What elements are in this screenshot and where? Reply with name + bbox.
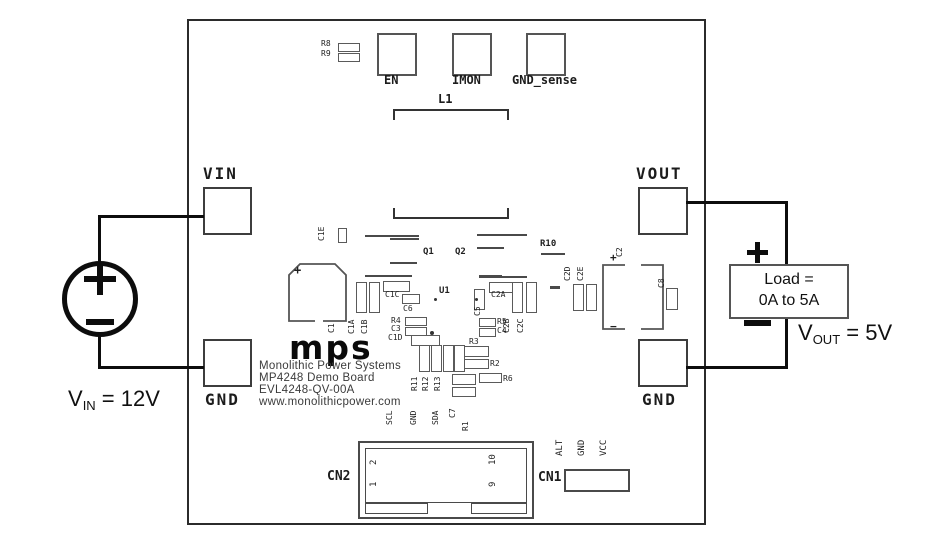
c2d-body <box>573 284 584 311</box>
c8-body <box>666 288 678 310</box>
pad-en <box>377 33 417 76</box>
refdes-c1d: C1D <box>388 333 402 343</box>
logo-line-partnumber: EVL4248-QV-00A <box>259 384 355 396</box>
refdes-r10: R10 <box>540 239 556 249</box>
load-plus-icon <box>755 242 760 263</box>
wire-vout-top <box>686 201 788 204</box>
refdes-c2a: C2A <box>491 290 505 300</box>
wire-vin-top <box>100 215 204 218</box>
refdes-c7: C7 <box>448 408 458 418</box>
refdes-c1c: C1C <box>385 290 399 300</box>
r5-body-1 <box>479 318 496 327</box>
pcb-board-outline: EN IMON GND_sense L1 VIN GND VOUT GND mp… <box>187 19 706 525</box>
r1-body <box>452 387 476 397</box>
c2-plus-mark: + <box>610 253 617 263</box>
copper-trace-9 <box>541 253 565 255</box>
logo-line-board: MP4248 Demo Board <box>259 372 375 384</box>
c7-body <box>452 374 476 385</box>
vin-value-label: VIN = 12V <box>68 386 160 413</box>
c2-minus-mark: − <box>610 322 617 332</box>
pad-vout-label: VOUT <box>636 164 683 183</box>
r14-body <box>454 345 465 372</box>
load-minus-icon <box>744 320 771 326</box>
cn1-signal-alt: ALT <box>555 440 566 456</box>
silkscreen-dot-3 <box>430 331 434 335</box>
inductor-l1-outline-bottom <box>393 208 509 219</box>
refdes-r13: R13 <box>433 377 443 391</box>
r5-body-2 <box>479 328 496 337</box>
refdes-r8: R8 <box>321 39 331 49</box>
silkscreen-dot-2 <box>475 298 478 301</box>
refdes-r6: R6 <box>503 374 513 384</box>
silkscreen-dot-1 <box>434 298 437 301</box>
refdes-u1: U1 <box>439 286 450 296</box>
cn1-signal-vcc: VCC <box>599 440 610 456</box>
refdes-c2e: C2E <box>576 267 586 281</box>
cn1-signal-gnd: GND <box>577 440 588 456</box>
wire-source-bottom <box>98 333 101 369</box>
c1b-body <box>369 282 380 313</box>
cn2-signal-gnd: GND <box>409 411 419 425</box>
cn2-pin10-label: 10 <box>488 454 499 465</box>
pad-gnd-right-label: GND <box>642 390 677 409</box>
pad-gnd-right <box>638 339 688 387</box>
schematic-diagram: VIN = 12V Load = 0A to 5A VOUT = 5V EN I… <box>0 0 950 536</box>
wire-gnd-right <box>686 366 788 369</box>
refdes-c1: C1 <box>327 323 337 333</box>
wire-gnd-left <box>100 366 204 369</box>
copper-trace-4 <box>477 247 504 249</box>
refdes-c1a: C1A <box>347 320 357 334</box>
refdes-r1: R1 <box>461 421 471 431</box>
copper-trace-8 <box>502 276 527 278</box>
cn2-pin2-label: 2 <box>369 460 380 465</box>
wire-load-top <box>785 201 788 266</box>
source-minus-icon <box>86 319 114 325</box>
connector-cn2-label: CN2 <box>327 469 350 484</box>
pad-vin <box>203 187 252 235</box>
pad-en-label: EN <box>384 73 398 87</box>
connector-cn1-label: CN1 <box>538 470 561 485</box>
connector-cn2-inner <box>365 448 527 503</box>
refdes-c8: C8 <box>657 278 667 288</box>
inductor-l1-outline-top <box>393 109 509 120</box>
c6-body <box>402 294 420 304</box>
r6-body <box>479 373 502 383</box>
connector-cn2-notch-right <box>471 503 527 514</box>
pad-imon-label: IMON <box>452 73 481 87</box>
refdes-r12: R12 <box>421 377 431 391</box>
refdes-c1b: C1B <box>360 320 370 334</box>
pad-imon <box>452 33 492 76</box>
cn2-signal-sda: SDA <box>431 411 441 425</box>
refdes-r11: R11 <box>410 377 420 391</box>
connector-cn1-body <box>564 469 630 492</box>
refdes-c4: C4 <box>497 326 507 336</box>
refdes-q1: Q1 <box>423 247 434 257</box>
refdes-r3: R3 <box>469 337 479 347</box>
c2c-body <box>526 282 537 313</box>
inductor-l1-label: L1 <box>438 92 452 106</box>
cn2-signal-scl: SCL <box>385 411 395 425</box>
copper-trace-1 <box>365 235 419 237</box>
c1e-body <box>338 228 347 243</box>
cn2-pin1-label: 1 <box>369 482 380 487</box>
r11-body <box>419 345 430 372</box>
refdes-c6: C6 <box>403 304 413 314</box>
wire-load-bottom <box>785 312 788 369</box>
r13-body <box>443 345 454 372</box>
vout-value-label: VOUT = 5V <box>798 320 892 347</box>
wire-source-top <box>98 215 101 265</box>
refdes-r9: R9 <box>321 49 331 59</box>
source-plus-icon <box>97 263 103 295</box>
refdes-c2c: C2C <box>516 319 526 333</box>
refdes-r2: R2 <box>490 359 500 369</box>
pad-gnd-left-label: GND <box>205 390 240 409</box>
load-box: Load = 0A to 5A <box>729 264 849 319</box>
pad-gnd-sense <box>526 33 566 76</box>
refdes-c5: C5 <box>473 306 483 316</box>
copper-trace-6 <box>365 275 412 277</box>
refdes-c1e: C1E <box>317 227 327 241</box>
c2e-body <box>586 284 597 311</box>
load-line2: 0A to 5A <box>731 290 847 311</box>
refdes-c2d: C2D <box>563 267 573 281</box>
r4-body <box>405 317 427 326</box>
connector-cn2-notch-left <box>365 503 428 514</box>
pad-vin-label: VIN <box>203 164 238 183</box>
cn2-pin9-label: 9 <box>488 482 499 487</box>
load-line1: Load = <box>731 269 847 290</box>
logo-line-company: Monolithic Power Systems <box>259 360 401 372</box>
copper-trace-2 <box>390 238 419 240</box>
r8-body <box>338 43 360 52</box>
copper-trace-10 <box>550 286 560 289</box>
copper-trace-5 <box>390 262 417 264</box>
r3-body <box>464 346 489 357</box>
pad-gnd-left <box>203 339 252 387</box>
c1a-body <box>356 282 367 313</box>
r9-body <box>338 53 360 62</box>
copper-trace-3 <box>477 234 527 236</box>
mps-logo: mps <box>289 336 373 360</box>
c1-plus-mark: + <box>294 265 301 275</box>
c2b-body <box>512 282 523 313</box>
r12-body <box>431 345 442 372</box>
logo-line-website: www.monolithicpower.com <box>259 396 401 408</box>
refdes-q2: Q2 <box>455 247 466 257</box>
pad-gnd-sense-label: GND_sense <box>512 73 577 87</box>
pad-vout <box>638 187 688 235</box>
copper-trace-7 <box>479 275 502 278</box>
r2-body <box>464 359 489 369</box>
